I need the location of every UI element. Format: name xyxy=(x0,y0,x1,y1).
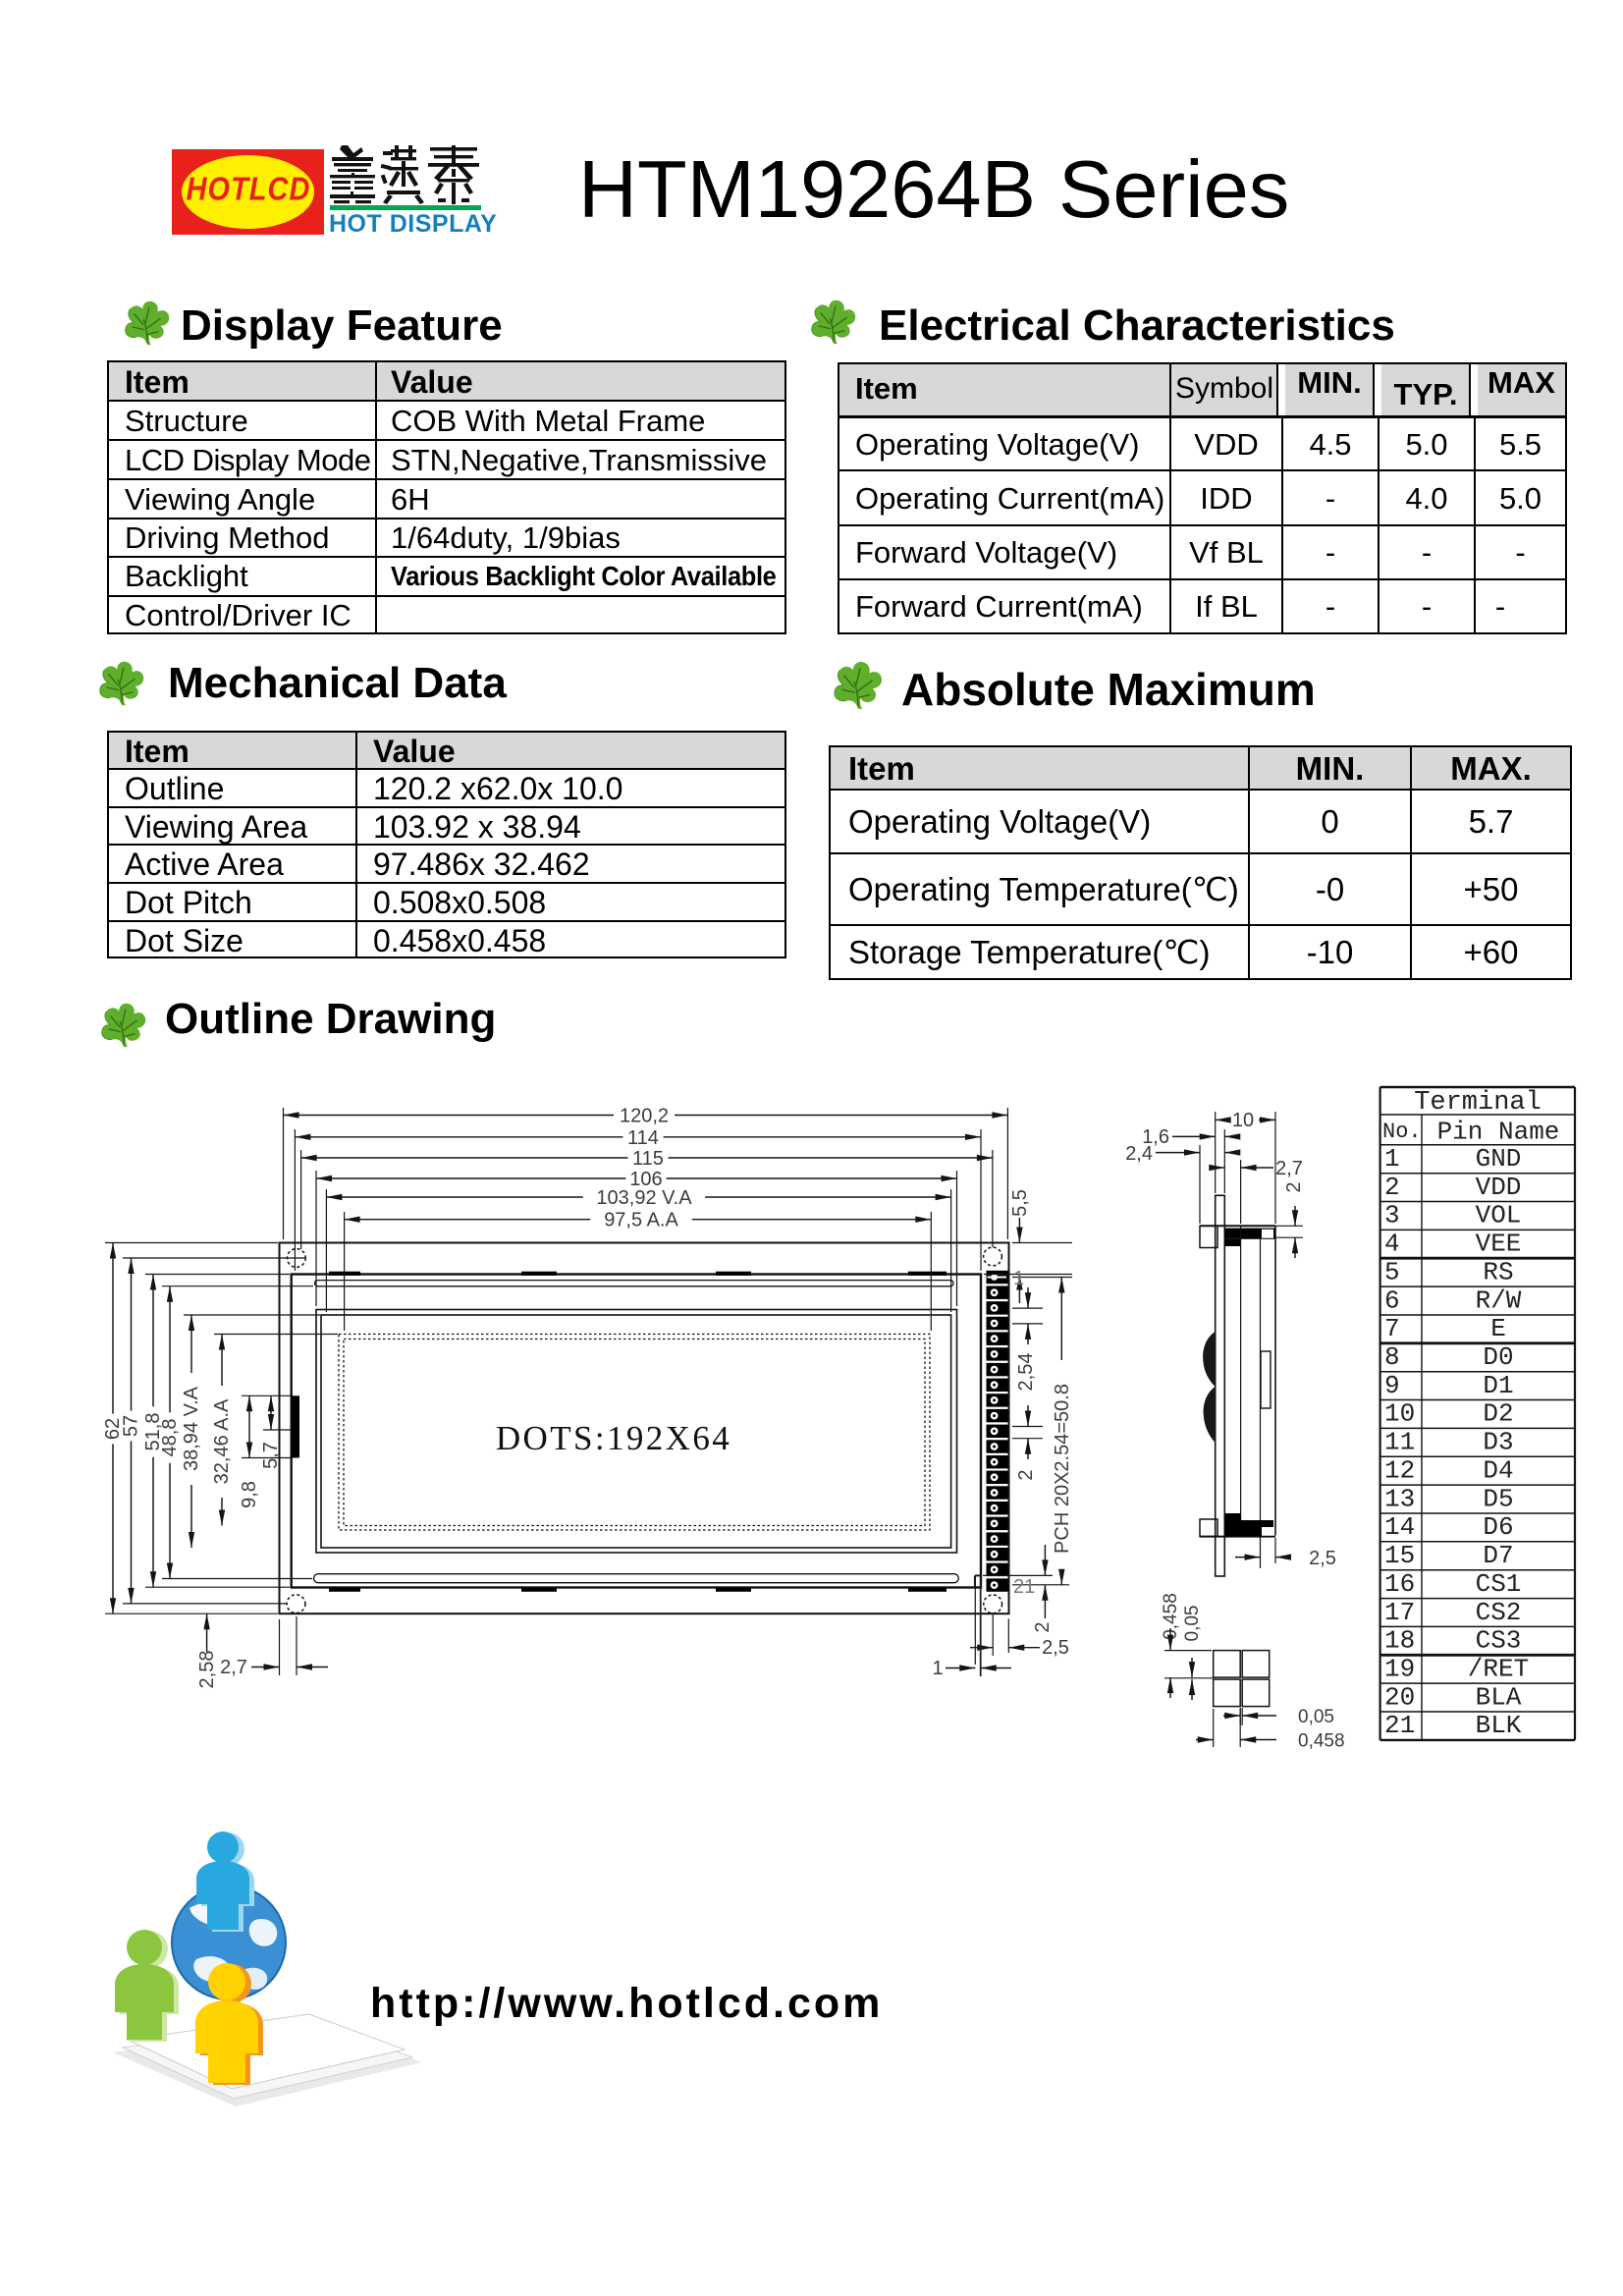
svg-text:48,8: 48,8 xyxy=(159,1419,181,1457)
svg-text:2,5: 2,5 xyxy=(1042,1637,1069,1659)
svg-text:1: 1 xyxy=(1384,1144,1400,1174)
svg-text:7: 7 xyxy=(1384,1314,1400,1343)
svg-text:5: 5 xyxy=(1384,1257,1400,1286)
svg-text:GND: GND xyxy=(1476,1144,1522,1174)
svg-text:11: 11 xyxy=(1384,1428,1415,1457)
svg-text:4: 4 xyxy=(1384,1230,1400,1259)
svg-text:D5: D5 xyxy=(1483,1484,1513,1513)
svg-text:12: 12 xyxy=(1384,1456,1415,1486)
svg-text:1: 1 xyxy=(1013,1268,1024,1289)
svg-text:9: 9 xyxy=(1384,1371,1400,1400)
svg-text:RS: RS xyxy=(1483,1257,1513,1286)
svg-text:D6: D6 xyxy=(1483,1512,1513,1542)
svg-text:0,05: 0,05 xyxy=(1298,1707,1334,1727)
svg-text:21: 21 xyxy=(1384,1711,1415,1740)
svg-text:18: 18 xyxy=(1384,1626,1415,1656)
svg-text:13: 13 xyxy=(1384,1484,1415,1513)
svg-text:2,4: 2,4 xyxy=(1125,1143,1153,1165)
svg-text:9,8: 9,8 xyxy=(239,1481,260,1508)
svg-text:DOTS:192X64: DOTS:192X64 xyxy=(496,1419,731,1457)
svg-text:3: 3 xyxy=(1384,1201,1400,1230)
svg-text:2,5: 2,5 xyxy=(1309,1548,1336,1569)
svg-text:120,2: 120,2 xyxy=(620,1106,669,1127)
svg-text:D2: D2 xyxy=(1483,1399,1513,1429)
svg-text:PCH 20X2.54=50.8: PCH 20X2.54=50.8 xyxy=(1052,1384,1073,1554)
svg-text:103,92 V.A: 103,92 V.A xyxy=(596,1187,692,1209)
svg-text:D3: D3 xyxy=(1483,1428,1513,1457)
svg-text:BLK: BLK xyxy=(1476,1711,1522,1740)
svg-text:Terminal: Terminal xyxy=(1414,1088,1542,1118)
svg-text:5,7: 5,7 xyxy=(260,1442,282,1469)
svg-text:115: 115 xyxy=(632,1148,664,1170)
svg-text:15: 15 xyxy=(1384,1541,1415,1570)
svg-text:2,7: 2,7 xyxy=(220,1657,247,1678)
svg-text:114: 114 xyxy=(627,1127,659,1149)
svg-text:/RET: /RET xyxy=(1468,1655,1529,1684)
svg-text:2,7: 2,7 xyxy=(1275,1158,1303,1179)
svg-text:10: 10 xyxy=(1384,1399,1415,1429)
svg-text:2: 2 xyxy=(1032,1621,1054,1632)
svg-text:D0: D0 xyxy=(1483,1342,1513,1372)
svg-text:17: 17 xyxy=(1384,1598,1415,1627)
svg-text:32,46 A.A: 32,46 A.A xyxy=(211,1398,233,1484)
svg-text:2: 2 xyxy=(1384,1173,1400,1202)
svg-text:2,54: 2,54 xyxy=(1015,1353,1037,1392)
svg-text:VDD: VDD xyxy=(1476,1173,1522,1202)
svg-text:97,5 A.A: 97,5 A.A xyxy=(604,1210,678,1231)
svg-text:2,58: 2,58 xyxy=(196,1651,218,1689)
svg-text:CS3: CS3 xyxy=(1476,1626,1522,1656)
svg-text:8: 8 xyxy=(1384,1342,1400,1372)
svg-text:No.: No. xyxy=(1382,1120,1422,1144)
svg-text:14: 14 xyxy=(1384,1512,1415,1542)
svg-text:19: 19 xyxy=(1384,1655,1415,1684)
svg-text:6: 6 xyxy=(1384,1285,1400,1315)
svg-text:57: 57 xyxy=(121,1415,142,1437)
svg-text:10: 10 xyxy=(1232,1110,1254,1131)
svg-text:VEE: VEE xyxy=(1476,1230,1522,1259)
svg-text:D1: D1 xyxy=(1483,1371,1513,1400)
svg-text:38,94 V.A: 38,94 V.A xyxy=(181,1386,202,1471)
svg-text:D4: D4 xyxy=(1483,1456,1513,1486)
svg-text:1: 1 xyxy=(932,1658,943,1679)
svg-text:0,458: 0,458 xyxy=(1298,1731,1345,1752)
svg-text:BLA: BLA xyxy=(1476,1682,1522,1712)
svg-text:CS2: CS2 xyxy=(1476,1598,1522,1627)
svg-text:21: 21 xyxy=(1013,1576,1035,1598)
svg-text:VOL: VOL xyxy=(1476,1201,1522,1230)
svg-text:E: E xyxy=(1490,1314,1506,1343)
svg-text:16: 16 xyxy=(1384,1569,1415,1599)
svg-text:20: 20 xyxy=(1384,1682,1415,1712)
svg-text:CS1: CS1 xyxy=(1476,1569,1522,1599)
svg-text:Pin Name: Pin Name xyxy=(1437,1118,1560,1147)
svg-text:0,05: 0,05 xyxy=(1182,1606,1203,1642)
svg-text:D7: D7 xyxy=(1483,1541,1513,1570)
svg-text:2: 2 xyxy=(1015,1469,1037,1480)
svg-text:2: 2 xyxy=(1283,1181,1305,1192)
svg-text:5,5: 5,5 xyxy=(1009,1189,1031,1217)
svg-text:R/W: R/W xyxy=(1476,1285,1522,1315)
